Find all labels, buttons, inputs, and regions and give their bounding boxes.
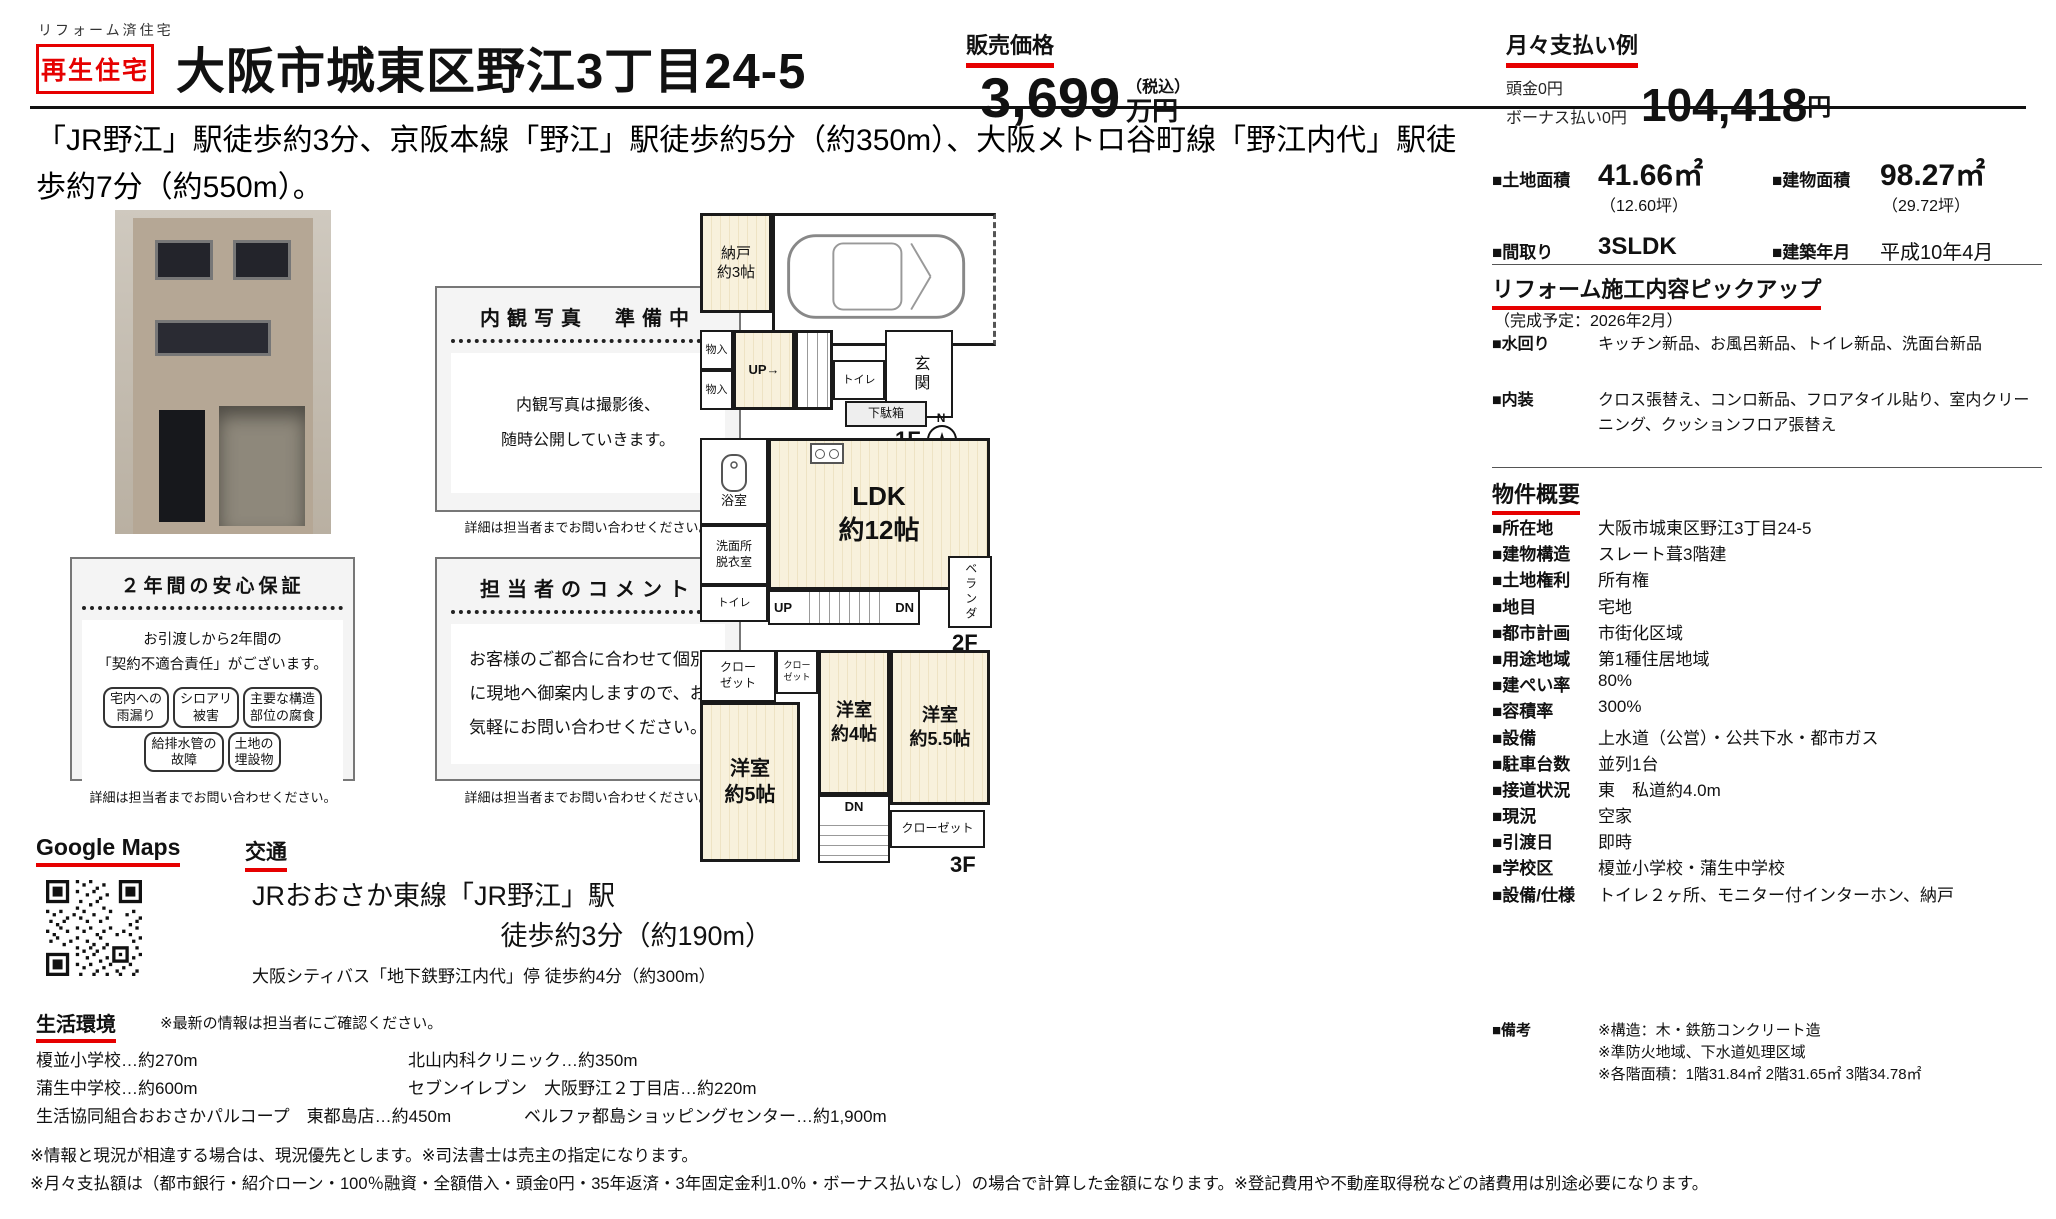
access-title: 交通	[245, 836, 287, 872]
warranty-pill: 主要な構造 部位の腐食	[243, 687, 322, 728]
land-area-tsubo: （12.60坪）	[1600, 192, 1688, 216]
table-row: ■建ぺい率80%	[1492, 671, 2044, 697]
room-toilet: トイレ	[700, 585, 768, 622]
compass-north-label: N	[937, 411, 946, 425]
environment-title: 生活環境	[36, 1008, 116, 1043]
table-row: ■土地権利所有権	[1492, 566, 2044, 592]
price-label: 販売価格	[966, 28, 1054, 68]
row-label: ■容積率	[1492, 697, 1598, 722]
comment-box-text: お客様のご都合に合わせて個別 に現地へ御案内しますので、お 気軽にお問い合わせく…	[469, 643, 707, 745]
section-divider	[1492, 264, 2042, 265]
renovation-row-label: ■内装	[1492, 389, 1598, 439]
room-bedroom-4: 洋室 約4帖	[818, 650, 890, 795]
stair-treads	[800, 592, 887, 623]
interior-photo-box: 内観写真 準備中 内観写真は撮影後、 随時公開していきます。	[435, 286, 741, 512]
veranda: ベランダ	[948, 556, 992, 628]
table-row: ■駐車台数並列1台	[1492, 750, 2044, 776]
room-closet: クロー ゼット	[776, 650, 818, 694]
renovated-home-label: リフォーム済住宅	[38, 20, 174, 40]
row-label: ■土地権利	[1492, 566, 1598, 591]
monthly-payment-block: 月々支払い例 頭金0円 ボーナス払い0円 104,418 円	[1506, 28, 1831, 134]
row-label: ■用途地域	[1492, 645, 1598, 670]
row-label: ■建ぺい率	[1492, 671, 1598, 696]
table-row: ■設備/仕様トイレ２ヶ所、モニター付インターホン、納戸	[1492, 881, 2044, 907]
table-row: ■引渡日即時	[1492, 828, 2044, 854]
floorplan-1f: 納戸 約3帖 物入 物入 UP→ トイレ 玄関 下駄箱	[700, 213, 992, 425]
row-value: トイレ２ヶ所、モニター付インターホン、納戸	[1598, 881, 2044, 906]
warranty-pills: 宅内への 雨漏り シロアリ 被害 主要な構造 部位の腐食 給排水管の 故障 土地…	[82, 685, 343, 782]
table-row: ■現況空家	[1492, 802, 2044, 828]
environment-note: ※最新の情報は担当者にご確認ください。	[160, 1012, 442, 1033]
renovation-title: リフォーム施工内容ピックアップ	[1492, 272, 1821, 310]
down-label: DN	[820, 797, 888, 816]
room-toilet: トイレ	[833, 360, 885, 400]
table-row: ■都市計画市街化区域	[1492, 619, 2044, 645]
environment-item: 北山内科クリニック…約350m	[408, 1046, 638, 1071]
renovation-completion: （完成予定：2026年2月）	[1494, 307, 1683, 331]
room-closet: クロー ゼット	[700, 650, 776, 702]
exterior-photo	[115, 210, 331, 534]
flyer-page: リフォーム済住宅 再生住宅 大阪市城東区野江3丁目24-5 販売価格 3,699…	[0, 0, 2056, 1219]
row-value: 80%	[1598, 671, 2044, 691]
row-value: 第1種住居地域	[1598, 645, 2044, 670]
floorplan-3f: クロー ゼット クロー ゼット 洋室 約5帖 洋室 約4帖 洋室 約5.5帖 D…	[700, 650, 992, 865]
google-maps-title: Google Maps	[36, 834, 180, 867]
staircase: UP DN	[768, 590, 920, 625]
room-bedroom-5-5: 洋室 約5.5帖	[890, 650, 990, 805]
environment-title-text: 生活環境	[36, 1008, 116, 1043]
room-closet: 物入	[700, 370, 733, 410]
comment-box-body: お客様のご都合に合わせて個別 に現地へ御案内しますので、お 気軽にお問い合わせく…	[451, 624, 725, 764]
renovation-title-text: リフォーム施工内容ピックアップ	[1492, 272, 1821, 310]
room-washroom: 洗面所 脱衣室	[700, 525, 768, 585]
renovation-row: ■水回り キッチン新品、お風呂新品、トイレ新品、洗面台新品	[1492, 333, 2042, 358]
warranty-pill: 土地の 埋設物	[228, 732, 281, 773]
land-area-label: ■土地面積	[1492, 166, 1570, 191]
table-row: ■用途地域第1種住居地域	[1492, 645, 2044, 671]
carport	[772, 213, 996, 346]
room-bathroom: 浴室	[700, 438, 768, 525]
room-closet: 物入	[700, 330, 733, 370]
environment-item: ベルファ都島ショッピングセンター…約1,900m	[524, 1102, 887, 1127]
table-row: ■地目宅地	[1492, 593, 2044, 619]
photo-window	[155, 320, 271, 356]
row-value: 並列1台	[1598, 750, 2044, 775]
floor-label-3f: 3F	[950, 852, 976, 878]
hall-up-stairs: UP→	[733, 330, 795, 410]
down-payment: 頭金0円	[1506, 76, 1641, 105]
remarks-row: ■備考 ※構造：木・鉄筋コンクリート造 ※準防火地域、下水道処理区域 ※各階面積…	[1492, 1020, 2044, 1085]
land-area-value: 41.66㎡	[1598, 150, 1703, 194]
tax-note: （税込）	[1126, 73, 1190, 97]
room-closet: クローゼット	[890, 810, 985, 848]
disclaimer-line: ※情報と現況が相違する場合は、現況優先とします。※司法書士は売主の指定になります…	[30, 1142, 698, 1166]
access-line-bus: 大阪シティバス「地下鉄野江内代」停 徒歩約4分（約300m）	[252, 962, 716, 987]
renovation-row-value: クロス張替え、コンロ新品、フロアタイル貼り、室内クリーニング、クッションフロア張…	[1598, 389, 2042, 439]
remarks-value: ※構造：木・鉄筋コンクリート造 ※準防火地域、下水道処理区域 ※各階面積：1階3…	[1598, 1020, 2044, 1085]
dotted-divider	[451, 610, 725, 614]
monthly-conditions: 頭金0円 ボーナス払い0円	[1506, 76, 1641, 134]
price-block: 販売価格 3,699 （税込） 万円	[966, 28, 1190, 126]
up-label: UP	[770, 600, 796, 615]
overview-title-text: 物件概要	[1492, 477, 1580, 515]
monthly-payment-row: 頭金0円 ボーナス払い0円 104,418 円	[1506, 76, 1831, 134]
access-line-train: JRおおさか東線「JR野江」駅	[252, 874, 615, 913]
row-value: 上水道（公営）・公共下水・都市ガス	[1598, 724, 2044, 749]
qr-code	[46, 880, 142, 976]
header-divider	[30, 106, 2026, 109]
row-label: ■学校区	[1492, 854, 1598, 879]
building-area-value: 98.27㎡	[1880, 150, 1985, 194]
photo-window	[233, 240, 291, 280]
table-row: ■容積率300%	[1492, 697, 2044, 723]
monthly-payment-label: 月々支払い例	[1506, 28, 1638, 68]
row-label: ■所在地	[1492, 514, 1598, 539]
row-label: ■設備/仕様	[1492, 881, 1598, 906]
room-bedroom-5: 洋室 約5帖	[700, 702, 800, 862]
access-description: 「JR野江」駅徒歩約3分、京阪本線「野江」駅徒歩約5分（約350m）、大阪メトロ…	[36, 118, 1466, 211]
environment-item: 榎並小学校…約270m	[36, 1046, 198, 1071]
renovation-row-value: キッチン新品、お風呂新品、トイレ新品、洗面台新品	[1598, 333, 2042, 358]
row-value: 所有権	[1598, 566, 2044, 591]
disclaimer-line: ※月々支払額は（都市銀行・紹介ローン・100％融資・全額借入・頭金0円・35年返…	[30, 1170, 1708, 1194]
room-label: 浴室	[721, 493, 747, 510]
stove-icon	[810, 443, 844, 464]
row-label: ■駐車台数	[1492, 750, 1598, 775]
interior-box-body: 内観写真は撮影後、 随時公開していきます。	[451, 353, 725, 493]
environment-item: 生活協同組合おおさかパルコープ 東都島店…約450m	[36, 1102, 451, 1127]
bonus-payment: ボーナス払い0円	[1506, 105, 1641, 134]
building-area-tsubo: （29.72坪）	[1882, 192, 1970, 216]
table-row: ■設備上水道（公営）・公共下水・都市ガス	[1492, 724, 2044, 750]
contact-caption: 詳細は担当者までお問い合わせください。	[63, 787, 363, 806]
warranty-pill: 宅内への 雨漏り	[103, 687, 169, 728]
staircase	[795, 330, 833, 410]
environment-item: セブンイレブン 大阪野江２丁目店…約220m	[408, 1074, 757, 1099]
badge-text: 再生住宅	[41, 51, 149, 87]
overview-table: ■所在地大阪市城東区野江3丁目24-5 ■建物構造スレート葺3階建 ■土地権利所…	[1492, 514, 2044, 907]
section-divider	[1492, 467, 2042, 468]
warranty-box-title: ２年間の安心保証	[82, 571, 343, 598]
built-date-value: 平成10年4月	[1880, 236, 1993, 265]
access-title-text: 交通	[245, 836, 287, 872]
monthly-value: 104,418	[1641, 82, 1807, 128]
shoe-cabinet: 下駄箱	[845, 401, 927, 427]
row-value: 東 私道約4.0m	[1598, 776, 2044, 801]
row-label: ■引渡日	[1492, 828, 1598, 853]
rebirth-house-badge: 再生住宅	[36, 44, 154, 94]
monthly-unit: 円	[1807, 87, 1831, 122]
row-value: スレート葺3階建	[1598, 540, 2044, 565]
renovation-row-label: ■水回り	[1492, 333, 1598, 358]
row-value: 宅地	[1598, 593, 2044, 618]
table-row: ■所在地大阪市城東区野江3丁目24-5	[1492, 514, 2044, 540]
row-label: ■都市計画	[1492, 619, 1598, 644]
interior-box-title: 内観写真 準備中	[451, 302, 725, 331]
row-value: 空家	[1598, 802, 2044, 827]
stair-treads	[820, 816, 888, 861]
warranty-pill: 給排水管の 故障	[144, 732, 223, 773]
row-label: ■設備	[1492, 724, 1598, 749]
row-value: 市街化区域	[1598, 619, 2044, 644]
contact-caption: 詳細は担当者までお問い合わせください。	[435, 787, 741, 806]
row-label: ■地目	[1492, 593, 1598, 618]
row-value: 即時	[1598, 828, 2044, 853]
dotted-divider	[451, 339, 725, 343]
warranty-box-body: お引渡しから2年間の 「契約不適合責任」がございます。	[82, 620, 343, 685]
bathtub-icon	[720, 453, 748, 493]
floorplan-2f: 浴室 洗面所 脱衣室 トイレ LDK 約12帖 UP DN ベランダ	[700, 438, 992, 630]
warranty-box-text: お引渡しから2年間の 「契約不適合責任」がございます。	[97, 628, 328, 677]
remarks-label: ■備考	[1492, 1020, 1598, 1085]
row-value: 300%	[1598, 697, 2044, 717]
down-label: DN	[891, 600, 918, 615]
row-label: ■建物構造	[1492, 540, 1598, 565]
room-storage: 納戸 約3帖	[700, 213, 772, 313]
google-maps-title-text: Google Maps	[36, 834, 180, 867]
property-title: 大阪市城東区野江3丁目24-5	[176, 32, 806, 103]
row-label: ■現況	[1492, 802, 1598, 827]
interior-box-text: 内観写真は撮影後、 随時公開していきます。	[501, 388, 675, 458]
warranty-pill: シロアリ 被害	[173, 687, 239, 728]
car-icon	[775, 216, 987, 337]
table-row: ■接道状況東 私道約4.0m	[1492, 776, 2044, 802]
contact-caption: 詳細は担当者までお問い合わせください。	[435, 517, 741, 536]
dotted-divider	[82, 606, 343, 610]
comment-box-title: 担当者のコメント	[451, 573, 725, 602]
renovation-row: ■内装 クロス張替え、コンロ新品、フロアタイル貼り、室内クリーニング、クッション…	[1492, 389, 2042, 439]
table-row: ■学校区榎並小学校・蒲生中学校	[1492, 854, 2044, 880]
row-value: 大阪市城東区野江3丁目24-5	[1598, 514, 2044, 539]
staircase: DN	[818, 795, 890, 863]
environment-item: 蒲生中学校…約600m	[36, 1074, 198, 1099]
photo-door	[159, 410, 205, 522]
table-row: ■建物構造スレート葺3階建	[1492, 540, 2044, 566]
warranty-box: ２年間の安心保証 お引渡しから2年間の 「契約不適合責任」がございます。 宅内へ…	[70, 557, 355, 781]
row-label: ■接道状況	[1492, 776, 1598, 801]
photo-garage	[219, 406, 305, 526]
access-line-walk: 徒歩約3分（約190m）	[252, 914, 772, 953]
layout-label: ■間取り	[1492, 238, 1553, 263]
row-value: 榎並小学校・蒲生中学校	[1598, 854, 2044, 879]
building-area-label: ■建物面積	[1772, 166, 1850, 191]
built-date-label: ■建築年月	[1772, 238, 1850, 263]
layout-value: 3SLDK	[1598, 233, 1677, 261]
agent-comment-box: 担当者のコメント お客様のご都合に合わせて個別 に現地へ御案内しますので、お 気…	[435, 557, 741, 781]
overview-title: 物件概要	[1492, 477, 1580, 515]
photo-window	[155, 240, 213, 280]
